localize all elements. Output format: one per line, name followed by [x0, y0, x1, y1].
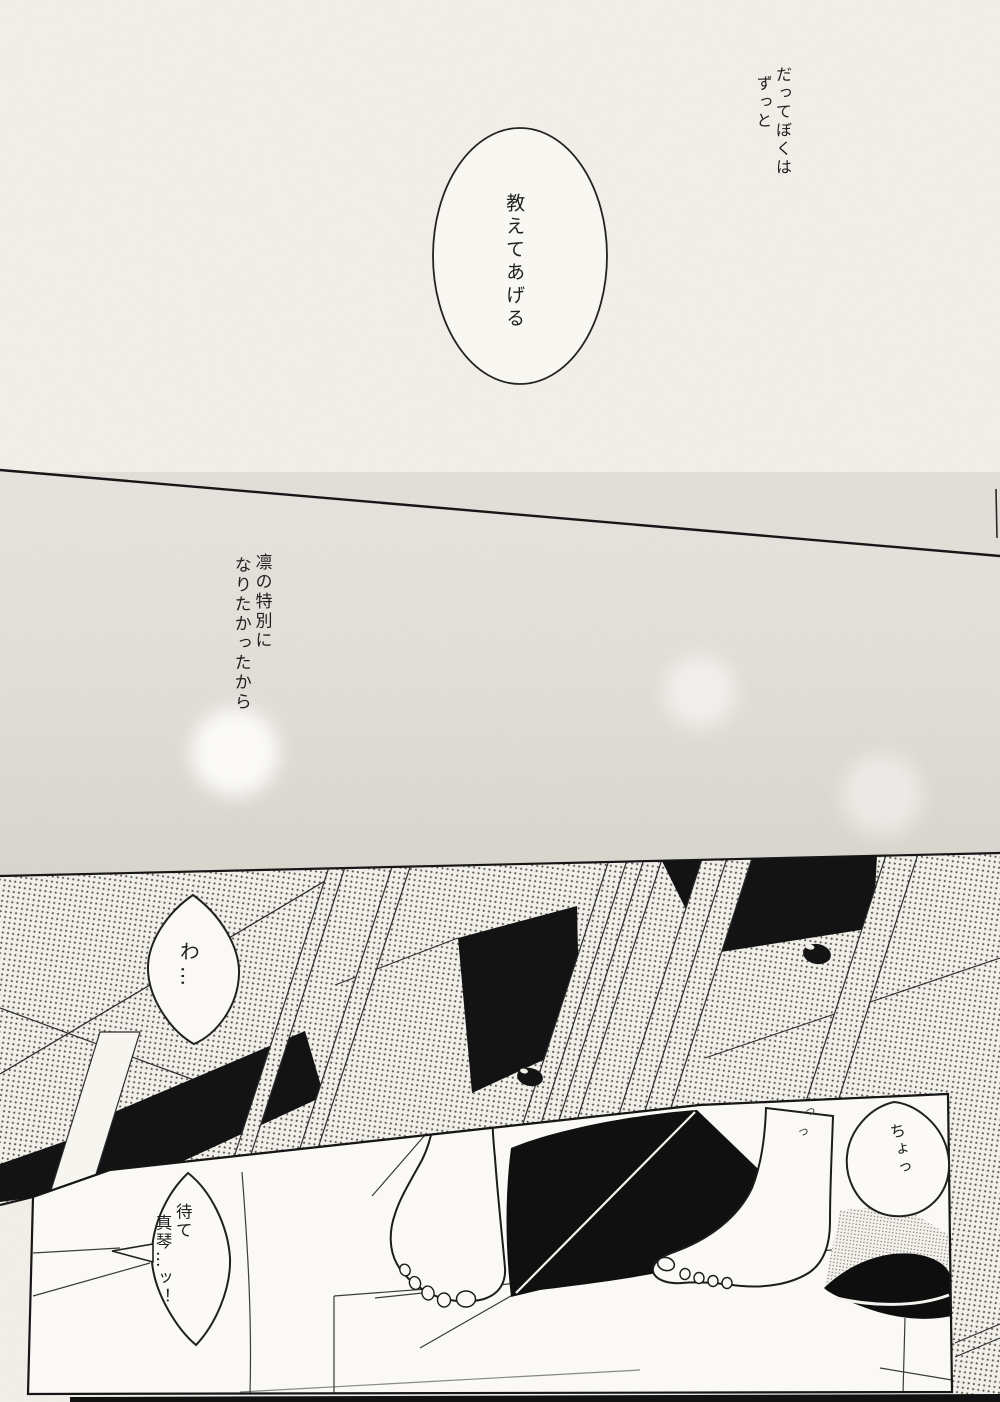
speech-text-mate: 待て 真琴…ッ！ — [152, 1203, 192, 1343]
speech-text-mate-line2: 真琴…ッ！ — [152, 1214, 172, 1343]
toe — [708, 1276, 718, 1287]
narration-top: だってぼくは ずっと — [753, 66, 792, 226]
speech-text-teach: 教えてあげる — [502, 193, 525, 343]
speech-text-wa-line: わ… — [176, 941, 200, 1031]
narration-top-line1: だってぼくは — [773, 66, 793, 226]
manga-page-art — [0, 0, 1000, 1402]
big-toe — [457, 1291, 476, 1307]
speech-text-wa: わ… — [176, 941, 200, 1031]
toe — [437, 1292, 451, 1307]
glow-spot — [842, 755, 922, 835]
manga-page: だってぼくは ずっと 教えてあげる 凛の特別に なりたかったから わ… ちょっ … — [0, 0, 1000, 1402]
speech-text-teach-line: 教えてあげる — [502, 193, 525, 343]
toe — [694, 1273, 704, 1284]
toe — [722, 1278, 732, 1289]
glow-spot — [664, 656, 736, 728]
narration-mid: 凛の特別に なりたかったから — [230, 553, 271, 723]
sfx-small-tsu-2: っ — [791, 1125, 810, 1143]
speech-text-mate-line1: 待て — [172, 1203, 192, 1343]
narration-top-line2: ずっと — [753, 75, 773, 226]
panel-border-right-stub — [996, 489, 997, 538]
narration-mid-line1: 凛の特別に — [251, 553, 272, 723]
narration-mid-line2: なりたかったから — [230, 556, 251, 723]
